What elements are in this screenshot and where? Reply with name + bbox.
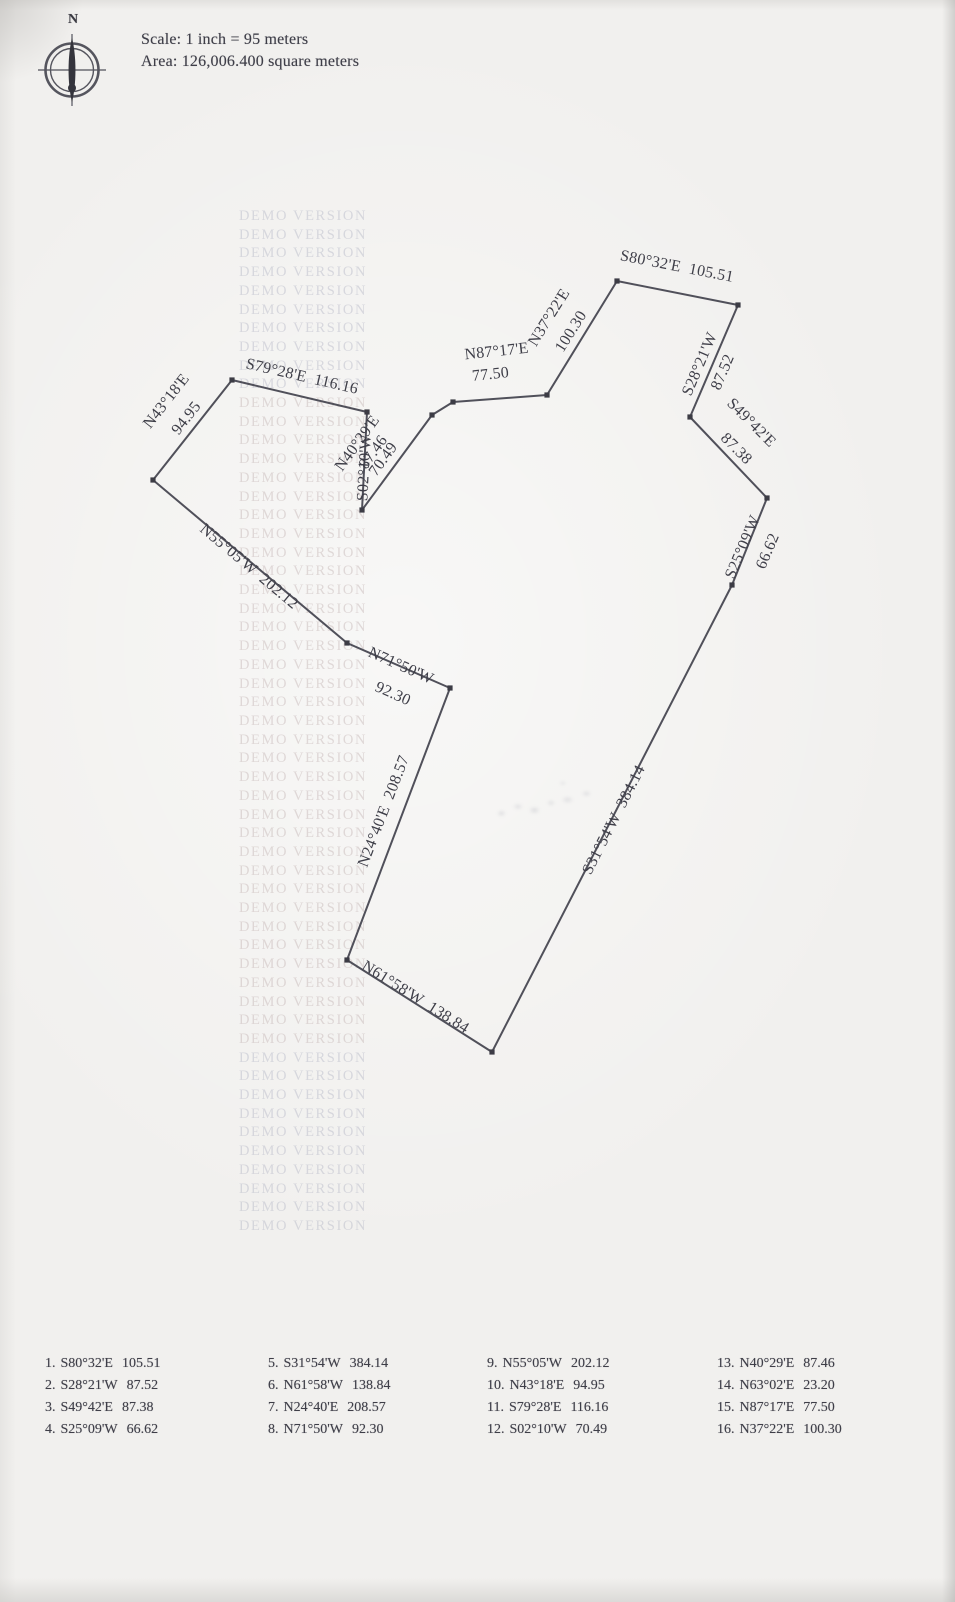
vertex-marker: [764, 495, 769, 500]
legend-n: 9.: [487, 1356, 498, 1371]
legend-n: 14.: [717, 1378, 735, 1393]
legend-bearing: S49°42'E: [61, 1400, 113, 1415]
legend-entry: 1.S80°32'E105.51: [45, 1356, 160, 1372]
legend-distance: 100.30: [803, 1422, 842, 1437]
legend-distance: 92.30: [352, 1422, 384, 1437]
legend-distance: 66.62: [127, 1422, 159, 1437]
legend-distance: 23.20: [803, 1378, 835, 1393]
legend-distance: 384.14: [350, 1356, 389, 1371]
legend-bearing: S25°09'W: [61, 1422, 118, 1437]
legend-bearing: N63°02'E: [740, 1378, 795, 1393]
legend-distance: 87.46: [803, 1356, 835, 1371]
legend-distance: 138.84: [352, 1378, 391, 1393]
legend-distance: 116.16: [570, 1400, 608, 1415]
legend-n: 4.: [45, 1422, 56, 1437]
edge-label: 87.38: [717, 430, 755, 468]
edge-label: N87°17'E: [464, 340, 530, 364]
legend-bearing: S02°10'W: [510, 1422, 567, 1437]
edge-label: N55°05'W 202.12: [196, 521, 301, 613]
edge-label: S80°32'E 105.51: [619, 247, 735, 286]
legend-distance: 70.49: [576, 1422, 608, 1437]
legend-distance: 208.57: [347, 1400, 386, 1415]
legend-entry: 6.N61°58'W138.84: [268, 1378, 390, 1394]
legend-n: 12.: [487, 1422, 505, 1437]
edge-label: 66.62: [753, 531, 783, 572]
legend-bearing: N71°50'W: [284, 1422, 343, 1437]
legend-entry: 7.N24°40'E208.57: [268, 1400, 386, 1416]
edge-label: N71°50'W: [366, 644, 437, 688]
legend-bearing: N61°58'W: [284, 1378, 343, 1393]
parcel-boundary-line: [153, 281, 767, 1052]
legend-distance: 94.95: [573, 1378, 605, 1393]
legend-entry: 10.N43°18'E94.95: [487, 1378, 605, 1394]
edge-label: 77.50: [471, 364, 510, 385]
legend-bearing: N24°40'E: [284, 1400, 339, 1415]
legend-bearing: N55°05'W: [503, 1356, 562, 1371]
legend-distance: 87.52: [127, 1378, 159, 1393]
legend-bearing: N40°29'E: [740, 1356, 795, 1371]
legend-entry: 14.N63°02'E23.20: [717, 1378, 835, 1394]
legend-bearing: N43°18'E: [510, 1378, 565, 1393]
vertex-marker: [687, 414, 692, 419]
legend-bearing: S28°21'W: [61, 1378, 118, 1393]
vertex-marker: [344, 640, 349, 645]
vertex-marker: [544, 392, 549, 397]
legend-entry: 2.S28°21'W87.52: [45, 1378, 158, 1394]
edge-label: 92.30: [372, 679, 413, 710]
legend-entry: 3.S49°42'E87.38: [45, 1400, 153, 1416]
legend-entry: 13.N40°29'E87.46: [717, 1356, 835, 1372]
legend-entry: 8.N71°50'W92.30: [268, 1422, 383, 1438]
bearing-distance-legend: 1.S80°32'E105.512.S28°21'W87.523.S49°42'…: [0, 1356, 955, 1466]
vertex-marker: [429, 412, 434, 417]
vertex-marker: [229, 377, 234, 382]
legend-bearing: S31°54'W: [284, 1356, 341, 1371]
legend-distance: 87.38: [122, 1400, 154, 1415]
pencil-smudge: [492, 778, 610, 830]
legend-n: 8.: [268, 1422, 279, 1437]
legend-entry: 11.S79°28'E116.16: [487, 1400, 608, 1416]
legend-bearing: S80°32'E: [61, 1356, 113, 1371]
legend-entry: 16.N37°22'E100.30: [717, 1422, 842, 1438]
edge-label: 87.52: [708, 352, 738, 393]
scanned-survey-plat-page: N Scale: 1 inch = 95 meters Area: 126,00…: [0, 0, 955, 1602]
legend-n: 2.: [45, 1378, 56, 1393]
legend-n: 11.: [487, 1400, 504, 1415]
edge-label: S79°28'E 116.16: [244, 355, 359, 397]
legend-distance: 202.12: [571, 1356, 610, 1371]
legend-bearing: N87°17'E: [740, 1400, 795, 1415]
vertex-marker: [614, 278, 619, 283]
vertex-marker: [150, 477, 155, 482]
legend-n: 3.: [45, 1400, 56, 1415]
legend-n: 16.: [717, 1422, 735, 1437]
legend-n: 1.: [45, 1356, 56, 1371]
vertex-marker: [489, 1049, 494, 1054]
legend-n: 6.: [268, 1378, 279, 1393]
legend-n: 10.: [487, 1378, 505, 1393]
vertex-marker: [447, 685, 452, 690]
legend-n: 13.: [717, 1356, 735, 1371]
legend-bearing: N37°22'E: [740, 1422, 795, 1437]
legend-entry: 5.S31°54'W384.14: [268, 1356, 388, 1372]
vertex-marker: [729, 582, 734, 587]
vertex-marker: [735, 302, 740, 307]
legend-bearing: S79°28'E: [509, 1400, 561, 1415]
legend-n: 7.: [268, 1400, 279, 1415]
legend-distance: 77.50: [803, 1400, 835, 1415]
vertex-marker: [344, 957, 349, 962]
legend-entry: 12.S02°10'W70.49: [487, 1422, 607, 1438]
vertex-marker: [359, 507, 364, 512]
vertex-marker: [450, 399, 455, 404]
edge-label: N61°58'W 138.84: [359, 957, 472, 1037]
legend-entry: 9.N55°05'W202.12: [487, 1356, 609, 1372]
legend-entry: 4.S25°09'W66.62: [45, 1422, 158, 1438]
edge-label: S25°09'W: [722, 512, 764, 581]
legend-distance: 105.51: [122, 1356, 161, 1371]
legend-entry: 15.N87°17'E77.50: [717, 1400, 835, 1416]
legend-n: 5.: [268, 1356, 279, 1371]
legend-n: 15.: [717, 1400, 735, 1415]
